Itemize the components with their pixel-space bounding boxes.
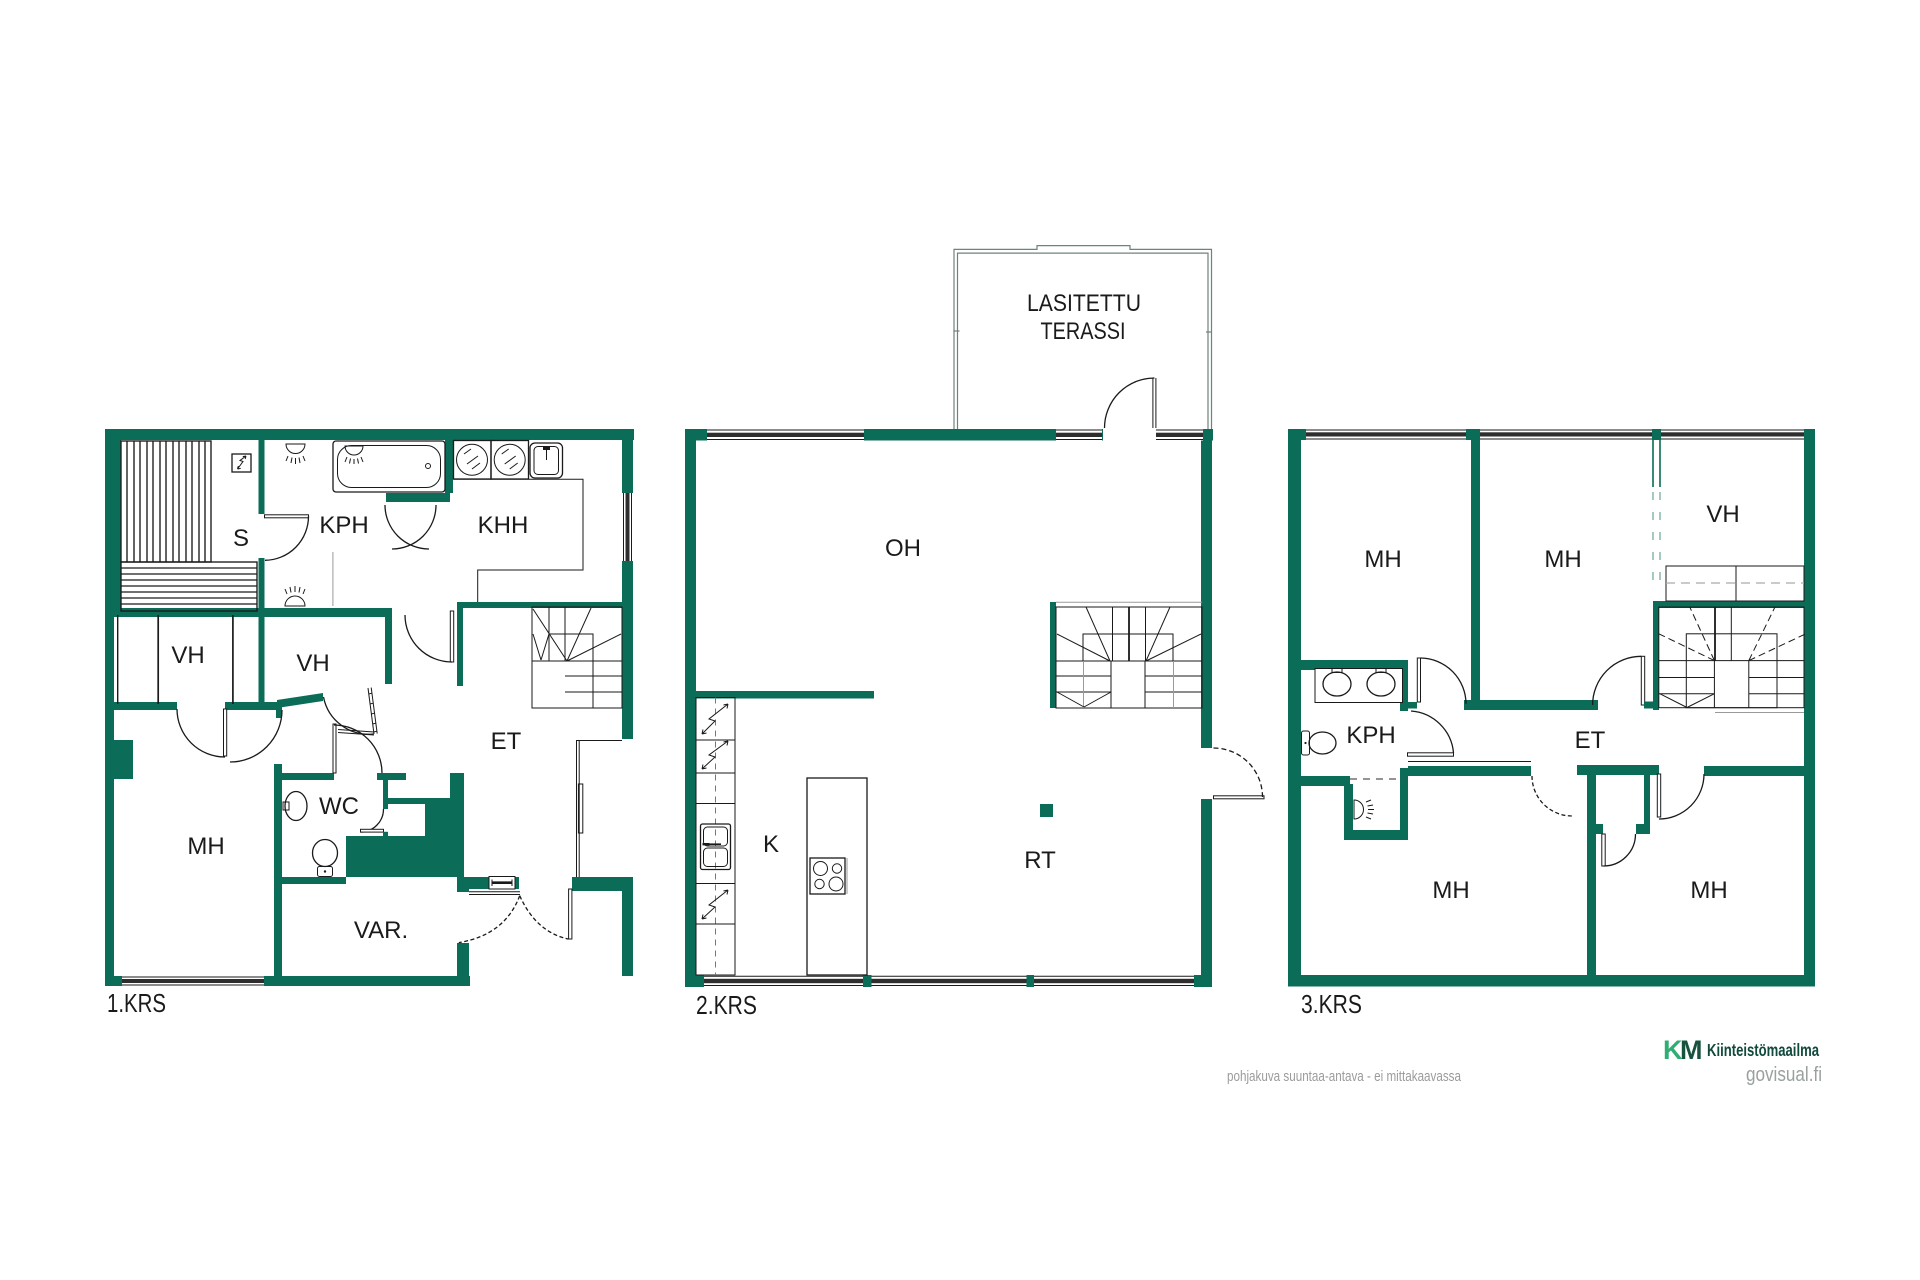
svg-text:VH: VH [296,650,329,677]
svg-text:RT: RT [1024,847,1056,874]
svg-text:KM: KM [1663,1035,1703,1065]
svg-text:MH: MH [1690,877,1727,904]
svg-text:3.KRS: 3.KRS [1301,989,1362,1019]
svg-text:MH: MH [1364,546,1401,573]
svg-text:VAR.: VAR. [354,917,408,944]
svg-text:MH: MH [1544,546,1581,573]
svg-text:TERASSI: TERASSI [1041,318,1126,345]
svg-text:KPH: KPH [1346,722,1395,749]
svg-text:KHH: KHH [478,512,529,539]
svg-text:LASITETTU: LASITETTU [1027,290,1141,317]
svg-text:KPH: KPH [319,512,368,539]
svg-text:pohjakuva suuntaa-antava - ei: pohjakuva suuntaa-antava - ei mittakaava… [1227,1068,1462,1085]
svg-text:K: K [763,831,779,858]
svg-text:VH: VH [171,642,204,669]
svg-text:Kiinteistömaailma: Kiinteistömaailma [1707,1040,1819,1060]
svg-text:VH: VH [1706,501,1739,528]
svg-text:ET: ET [491,728,522,755]
svg-text:MH: MH [187,833,224,860]
svg-text:ET: ET [1575,727,1606,754]
svg-text:S: S [233,525,249,552]
svg-text:1.KRS: 1.KRS [107,988,166,1018]
svg-text:MH: MH [1432,877,1469,904]
svg-text:OH: OH [885,535,921,562]
svg-text:WC: WC [319,793,359,820]
svg-text:govisual.fi: govisual.fi [1746,1064,1822,1086]
svg-text:2.KRS: 2.KRS [696,990,757,1020]
